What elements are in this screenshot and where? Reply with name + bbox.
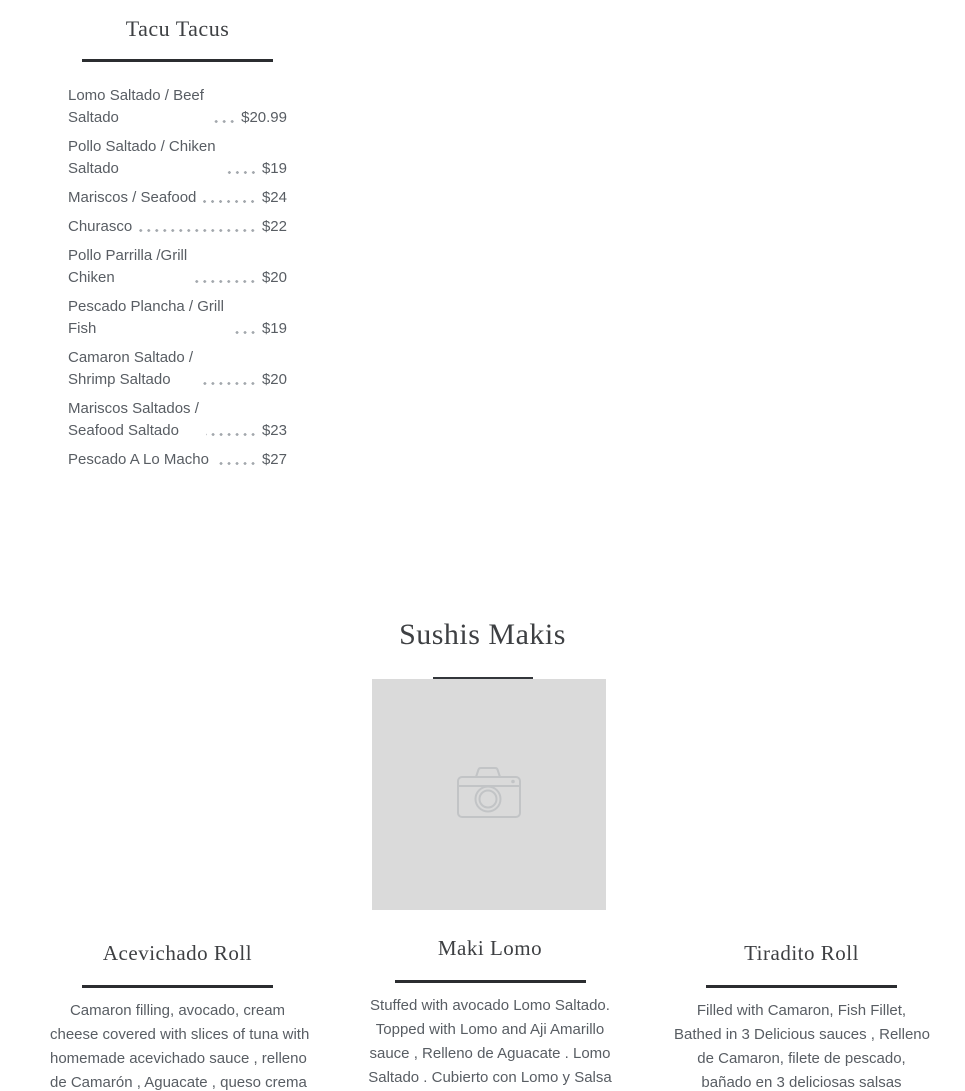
maki-lomo-title: Maki Lomo (362, 933, 618, 963)
menu-item: Pollo Saltado / Chiken Saltado $19 (68, 136, 287, 180)
description-line: Filled with Camaron, Fish Fillet, (674, 999, 929, 1023)
title-divider (82, 985, 273, 988)
dotted-leader (216, 462, 257, 465)
title-divider (82, 59, 273, 62)
restaurant-menu-page: Tacu Tacus Lomo Saltado / Beef Saltado $… (0, 0, 965, 1091)
dotted-leader (203, 200, 257, 203)
camera-icon (457, 766, 521, 824)
roll-description: Camaron filling, avocado, cream cheese c… (50, 999, 305, 1091)
roll-description: Stuffed with avocado Lomo Saltado. Toppe… (362, 994, 618, 1090)
description-line: Topped with Lomo and Aji Amarillo (362, 1018, 618, 1042)
menu-item-name: Pollo Parrilla /Grill Chiken (68, 245, 187, 289)
acevichado-roll-title: Acevichado Roll (50, 938, 305, 968)
sushis-makis-title: Sushis Makis (0, 616, 965, 654)
menu-item-price: $20 (262, 369, 287, 391)
menu-item-list: Lomo Saltado / Beef Saltado $20.99 Pollo… (50, 85, 305, 471)
image-placeholder (372, 679, 606, 910)
tacu-tacus-title: Tacu Tacus (50, 14, 305, 44)
menu-item-name: Churasco (68, 216, 132, 238)
description-line: de Camaron, filete de pescado, (674, 1047, 929, 1071)
menu-item-name: Pescado A Lo Macho (68, 449, 209, 471)
menu-item: Mariscos / Seafood $24 (68, 187, 287, 209)
menu-item-name: Mariscos / Seafood (68, 187, 196, 209)
description-line: cheese covered with slices of tuna with (50, 1023, 305, 1047)
menu-item-price: $20 (262, 267, 287, 289)
menu-item-name: Camaron Saltado / Shrimp Saltado (68, 347, 193, 391)
menu-item: Camaron Saltado / Shrimp Saltado $20 (68, 347, 287, 391)
menu-item-price: $22 (262, 216, 287, 238)
description-line: de Camarón , Aguacate , queso crema (50, 1071, 305, 1091)
description-line: Saltado . Cubierto con Lomo y Salsa (362, 1066, 618, 1090)
dotted-leader (194, 280, 257, 283)
dotted-leader (200, 382, 257, 385)
description-line: homemade acevichado sauce , relleno (50, 1047, 305, 1071)
description-line: Stuffed with avocado Lomo Saltado. (362, 994, 618, 1018)
dotted-leader (231, 331, 257, 334)
menu-item: Lomo Saltado / Beef Saltado $20.99 (68, 85, 287, 129)
menu-item: Pollo Parrilla /Grill Chiken $20 (68, 245, 287, 289)
menu-item: Pescado A Lo Macho $27 (68, 449, 287, 471)
menu-item-name: Lomo Saltado / Beef Saltado (68, 85, 204, 129)
menu-item-price: $19 (262, 158, 287, 180)
title-divider (395, 980, 586, 983)
menu-item-name: Pollo Saltado / Chiken Saltado (68, 136, 216, 180)
tiradito-roll-column: Tiradito Roll Filled with Camaron, Fish … (674, 938, 929, 1091)
dotted-leader (206, 433, 257, 436)
menu-item-price: $20.99 (241, 107, 287, 129)
menu-item: Mariscos Saltados / Seafood Saltado $23 (68, 398, 287, 442)
title-divider (706, 985, 897, 988)
description-line: Bathed in 3 Delicious sauces , Relleno (674, 1023, 929, 1047)
menu-item-name: Pescado Plancha / Grill Fish (68, 296, 224, 340)
menu-item-price: $23 (262, 420, 287, 442)
tacu-tacus-section: Tacu Tacus Lomo Saltado / Beef Saltado $… (50, 14, 305, 478)
description-line: sauce , Relleno de Aguacate . Lomo (362, 1042, 618, 1066)
sushis-makis-section: Sushis Makis (0, 616, 965, 679)
menu-item-price: $27 (262, 449, 287, 471)
dotted-leader (223, 171, 257, 174)
maki-lomo-column: Maki Lomo Stuffed with avocado Lomo Salt… (362, 933, 618, 1090)
description-line: bañado en 3 deliciosas salsas (674, 1071, 929, 1091)
description-line: Camaron filling, avocado, cream (50, 999, 305, 1023)
menu-item-price: $19 (262, 318, 287, 340)
menu-item-price: $24 (262, 187, 287, 209)
menu-item-name: Mariscos Saltados / Seafood Saltado (68, 398, 199, 442)
dotted-leader (139, 229, 257, 232)
menu-item: Churasco $22 (68, 216, 287, 238)
dotted-leader (211, 120, 236, 123)
acevichado-roll-column: Acevichado Roll Camaron filling, avocado… (50, 938, 305, 1091)
menu-item: Pescado Plancha / Grill Fish $19 (68, 296, 287, 340)
roll-description: Filled with Camaron, Fish Fillet, Bathed… (674, 999, 929, 1091)
tiradito-roll-title: Tiradito Roll (674, 938, 929, 968)
